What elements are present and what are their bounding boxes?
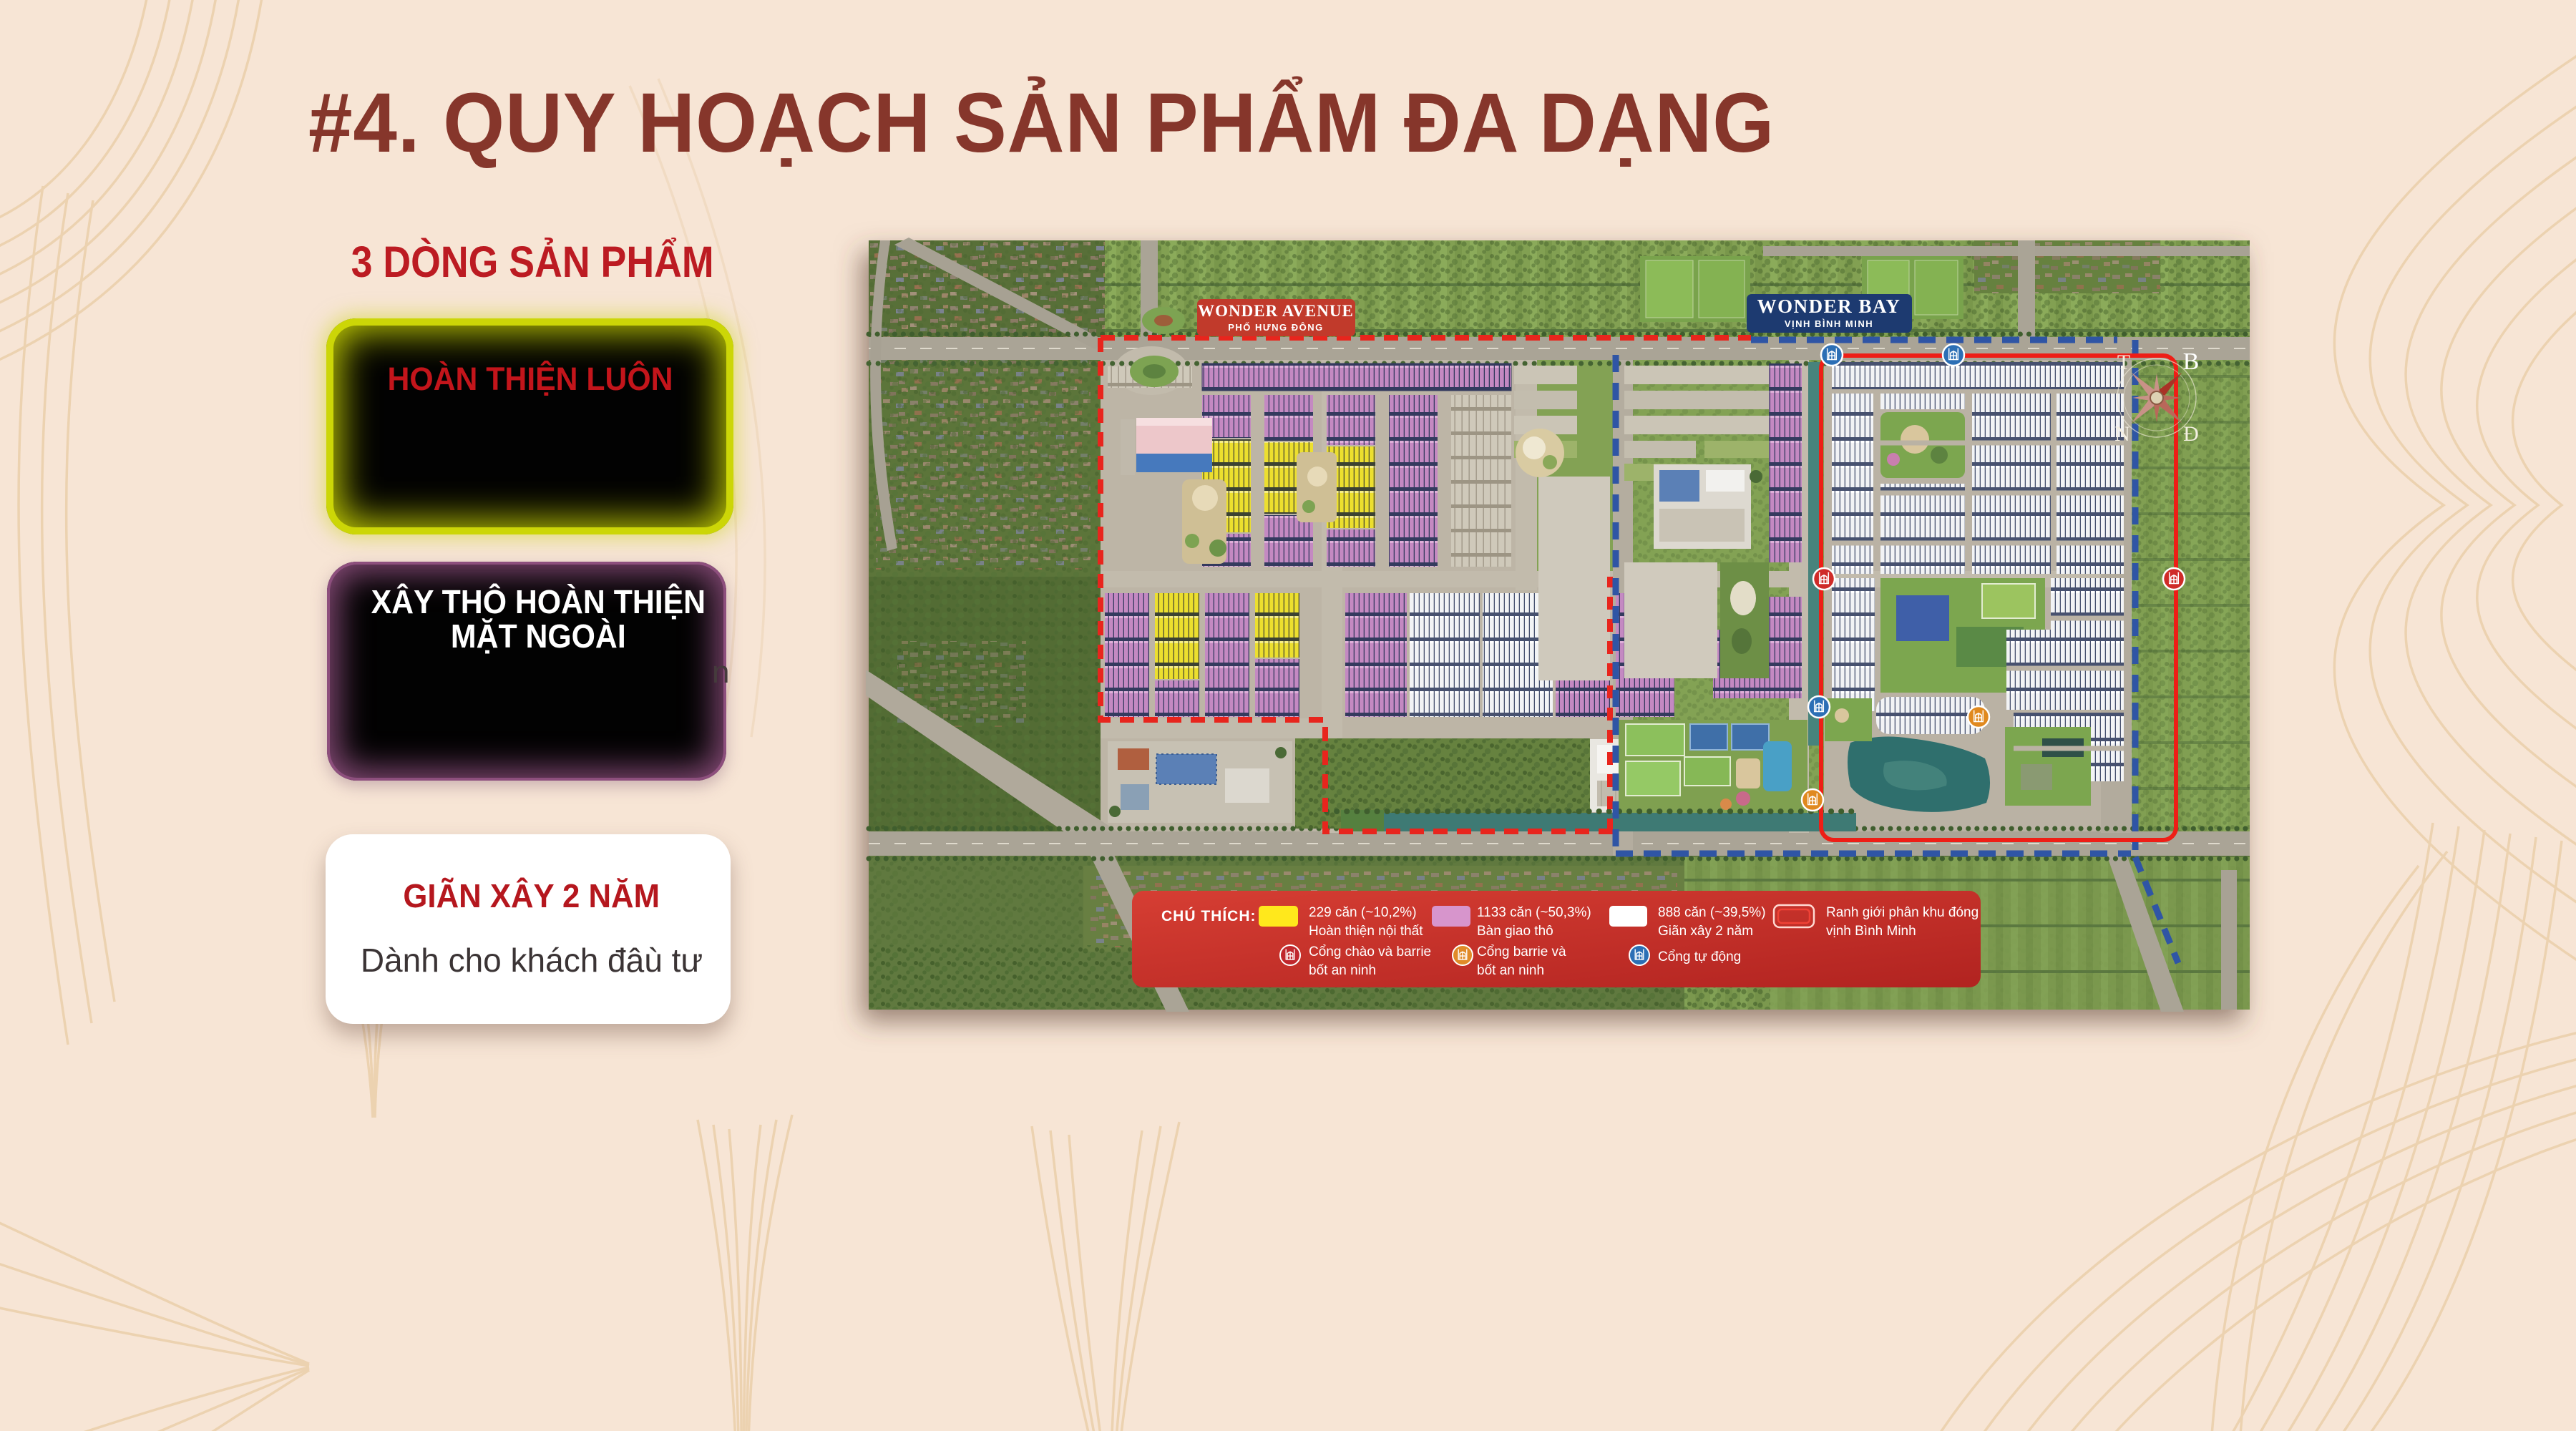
svg-text:Bàn giao thô: Bàn giao thô — [1477, 924, 1553, 939]
svg-text:bốt an ninh: bốt an ninh — [1477, 963, 1544, 978]
svg-text:Ranh giới phân khu đóng: Ranh giới phân khu đóng — [1826, 905, 1979, 920]
svg-text:PHỐ HƯNG ĐÔNG: PHỐ HƯNG ĐÔNG — [1228, 322, 1324, 333]
svg-text:T: T — [2117, 351, 2130, 374]
svg-text:Hoàn thiện nội thất: Hoàn thiện nội thất — [1309, 924, 1423, 939]
svg-text:888 căn (~39,5%): 888 căn (~39,5%) — [1658, 905, 1766, 920]
svg-text:Đ: Đ — [2183, 422, 2199, 446]
svg-text:Cổng barrie và: Cổng barrie và — [1477, 944, 1566, 959]
svg-text:Cổng tự động: Cổng tự động — [1658, 949, 1741, 964]
svg-text:B: B — [2183, 348, 2200, 375]
svg-text:WONDER BAY: WONDER BAY — [1757, 296, 1901, 317]
svg-text:Cổng chào và barrie: Cổng chào và barrie — [1309, 944, 1431, 959]
svg-text:WONDER AVENUE: WONDER AVENUE — [1198, 302, 1354, 320]
svg-text:vịnh Bình Minh: vịnh Bình Minh — [1826, 924, 1916, 939]
svg-text:bốt an ninh: bốt an ninh — [1309, 963, 1376, 978]
svg-text:1133 căn (~50,3%): 1133 căn (~50,3%) — [1477, 905, 1591, 920]
svg-text:VỊNH BÌNH MINH: VỊNH BÌNH MINH — [1785, 318, 1873, 329]
svg-text:Giãn xây 2 năm: Giãn xây 2 năm — [1658, 924, 1753, 939]
svg-text:CHÚ THÍCH:: CHÚ THÍCH: — [1161, 907, 1256, 924]
svg-text:229 căn (~10,2%): 229 căn (~10,2%) — [1309, 905, 1417, 920]
svg-text:N: N — [2114, 422, 2130, 446]
